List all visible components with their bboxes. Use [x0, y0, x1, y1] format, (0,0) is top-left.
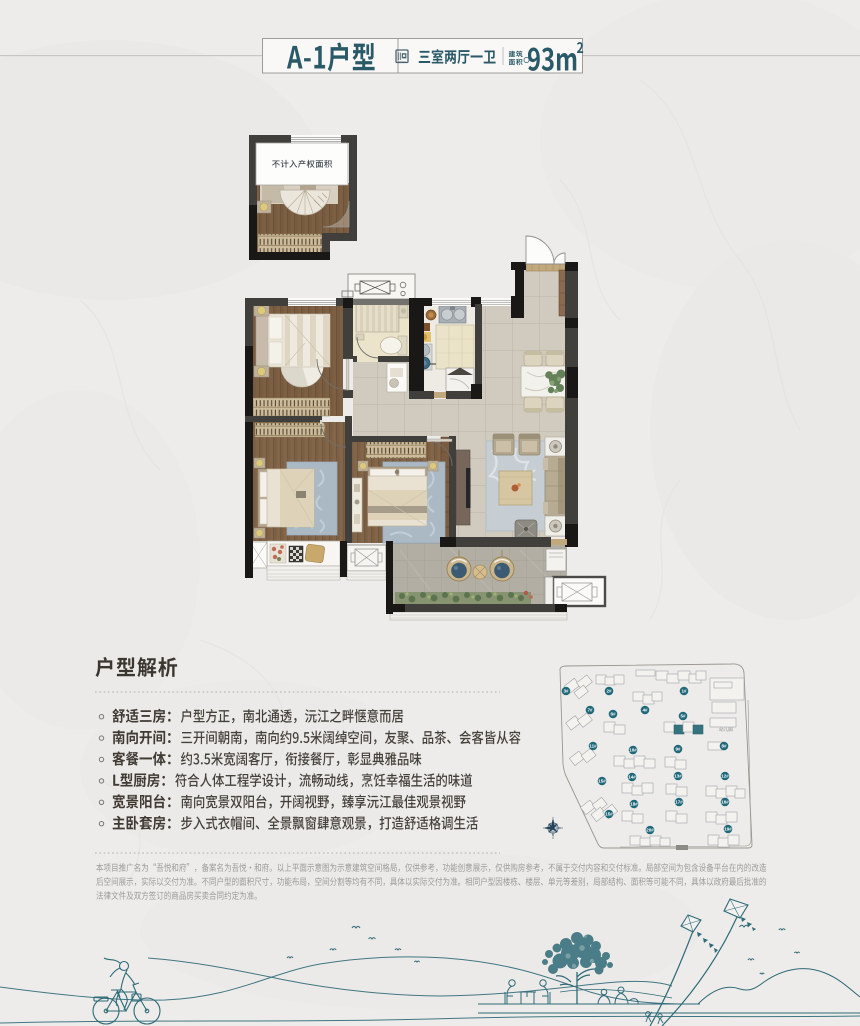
svg-text:18#: 18# — [630, 802, 638, 807]
svg-text:12#: 12# — [721, 774, 729, 779]
svg-text:1#: 1# — [681, 689, 687, 694]
svg-text:15#: 15# — [605, 812, 613, 817]
svg-text:17#: 17# — [675, 800, 683, 805]
svg-text:14#: 14# — [628, 775, 636, 780]
svg-text:4#: 4# — [642, 708, 648, 713]
svg-text:11#: 11# — [589, 744, 597, 749]
svg-text:2#: 2# — [606, 689, 612, 694]
svg-text:5#: 5# — [680, 714, 686, 719]
svg-text:10#: 10# — [629, 748, 637, 753]
svg-text:16#: 16# — [721, 800, 729, 805]
svg-text:9#: 9# — [675, 747, 681, 752]
svg-text:15#: 15# — [598, 779, 606, 784]
svg-text:3#: 3# — [563, 689, 569, 694]
svg-text:7#: 7# — [587, 708, 593, 713]
svg-text:13#: 13# — [674, 774, 682, 779]
svg-text:19#: 19# — [724, 827, 732, 832]
svg-text:20#: 20# — [646, 828, 654, 833]
svg-text:8#: 8# — [721, 744, 727, 749]
svg-text:6#: 6# — [610, 712, 616, 717]
